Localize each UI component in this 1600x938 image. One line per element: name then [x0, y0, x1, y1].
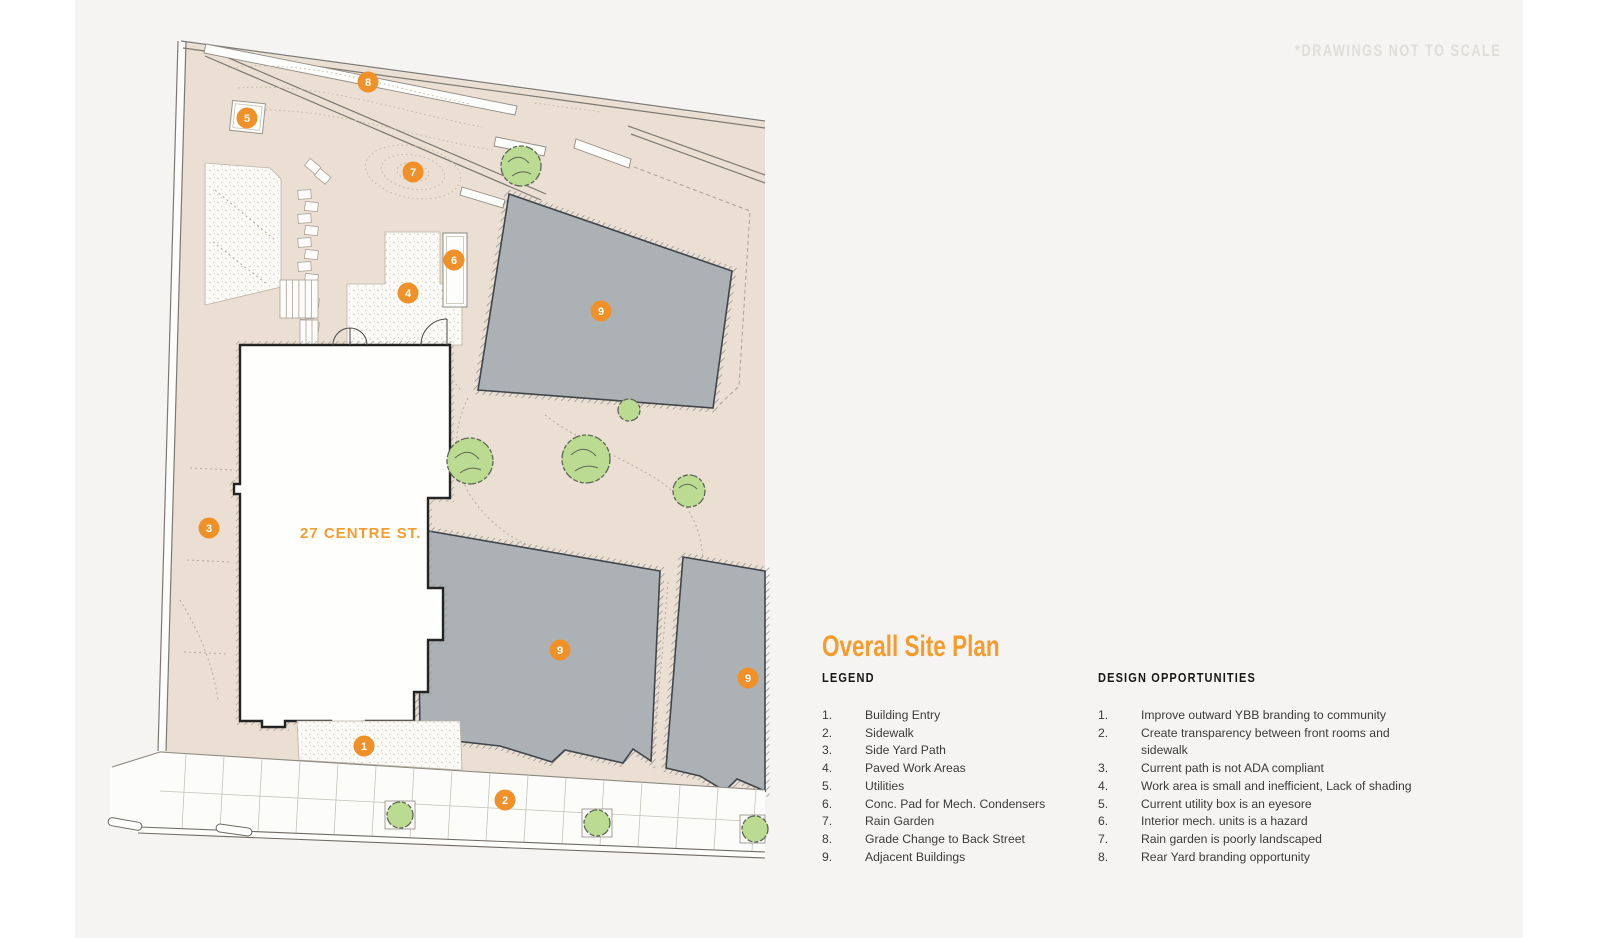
item-number: 4. — [822, 760, 865, 778]
plan-marker-2: 2 — [495, 790, 516, 811]
item-number: 4. — [1098, 778, 1141, 796]
svg-text:6: 6 — [451, 255, 457, 267]
svg-text:5: 5 — [244, 113, 250, 125]
svg-text:2: 2 — [502, 795, 508, 807]
item-text: Improve outward YBB branding to communit… — [1141, 707, 1386, 725]
item-text: Adjacent Buildings — [865, 849, 965, 867]
svg-text:7: 7 — [410, 167, 416, 179]
item-text: Current path is not ADA compliant — [1141, 760, 1324, 778]
plan-marker-9: 9 — [591, 301, 612, 322]
svg-text:9: 9 — [745, 673, 751, 685]
item-number: 6. — [822, 796, 865, 814]
svg-text:1: 1 — [361, 741, 367, 753]
item-text: Grade Change to Back Street — [865, 831, 1025, 849]
item-number: 6. — [1098, 813, 1141, 831]
plan-marker-3: 3 — [199, 518, 220, 539]
item-text: Current utility box is an eyesore — [1141, 796, 1312, 814]
plan-marker-8: 8 — [358, 72, 379, 93]
item-number: 2. — [822, 725, 865, 743]
opportunities-heading: DESIGN OPPORTUNITIES — [1098, 671, 1278, 685]
item-number: 5. — [822, 778, 865, 796]
item-number: 5. — [1098, 796, 1141, 814]
opportunity-item-6: 6.Interior mech. units is a hazard — [1098, 813, 1528, 831]
opportunity-item-4: 4.Work area is small and inefficient, La… — [1098, 778, 1528, 796]
opportunity-item-1: 1.Improve outward YBB branding to commun… — [1098, 707, 1528, 725]
plan-marker-7: 7 — [403, 162, 424, 183]
item-text: Paved Work Areas — [865, 760, 966, 778]
item-text: Rear Yard branding opportunity — [1141, 849, 1310, 867]
item-number: 3. — [822, 742, 865, 760]
opportunity-item-3: 3.Current path is not ADA compliant — [1098, 760, 1528, 778]
item-text: Conc. Pad for Mech. Condensers — [865, 796, 1045, 814]
item-text: Building Entry — [865, 707, 940, 725]
item-number: 8. — [822, 831, 865, 849]
plan-marker-6: 6 — [444, 250, 465, 271]
item-number: 1. — [1098, 707, 1141, 725]
opportunities-list: 1.Improve outward YBB branding to commun… — [1098, 707, 1528, 866]
item-number: 7. — [1098, 831, 1141, 849]
opportunity-item-7: 7.Rain garden is poorly landscaped — [1098, 831, 1528, 849]
item-number: 7. — [822, 813, 865, 831]
building-label: 27 CENTRE ST. — [300, 525, 421, 542]
plan-marker-9: 9 — [738, 668, 759, 689]
item-text: Rain garden is poorly landscaped — [1141, 831, 1322, 849]
item-text: Sidewalk — [865, 725, 914, 743]
item-number: 9. — [822, 849, 865, 867]
item-text: Interior mech. units is a hazard — [1141, 813, 1308, 831]
item-text: Work area is small and inefficient, Lack… — [1141, 778, 1412, 796]
patio-pavers — [205, 163, 281, 305]
svg-text:9: 9 — [598, 306, 604, 318]
plan-marker-9: 9 — [550, 640, 571, 661]
svg-text:9: 9 — [557, 645, 563, 657]
opportunity-item-5: 5.Current utility box is an eyesore — [1098, 796, 1528, 814]
svg-text:8: 8 — [365, 77, 371, 89]
item-number: 8. — [1098, 849, 1141, 867]
item-number: 3. — [1098, 760, 1141, 778]
opportunity-item-2: 2.Create transparency between front room… — [1098, 725, 1528, 760]
item-text: Rain Garden — [865, 813, 934, 831]
item-number: 2. — [1098, 725, 1141, 743]
opportunity-item-8: 8.Rear Yard branding opportunity — [1098, 849, 1528, 867]
plan-marker-5: 5 — [237, 108, 258, 129]
item-number: 1. — [822, 707, 865, 725]
item-text: Utilities — [865, 778, 904, 796]
page-title: Overall Site Plan — [822, 630, 1059, 664]
svg-text:3: 3 — [206, 523, 212, 535]
item-text: Side Yard Path — [865, 742, 946, 760]
item-text: Create transparency between front rooms … — [1141, 725, 1390, 760]
plan-marker-4: 4 — [398, 283, 419, 304]
plan-marker-1: 1 — [354, 736, 375, 757]
legend-heading: LEGEND — [822, 671, 882, 685]
svg-text:4: 4 — [405, 288, 412, 300]
scale-note: *DRAWINGS NOT TO SCALE — [1295, 41, 1570, 61]
